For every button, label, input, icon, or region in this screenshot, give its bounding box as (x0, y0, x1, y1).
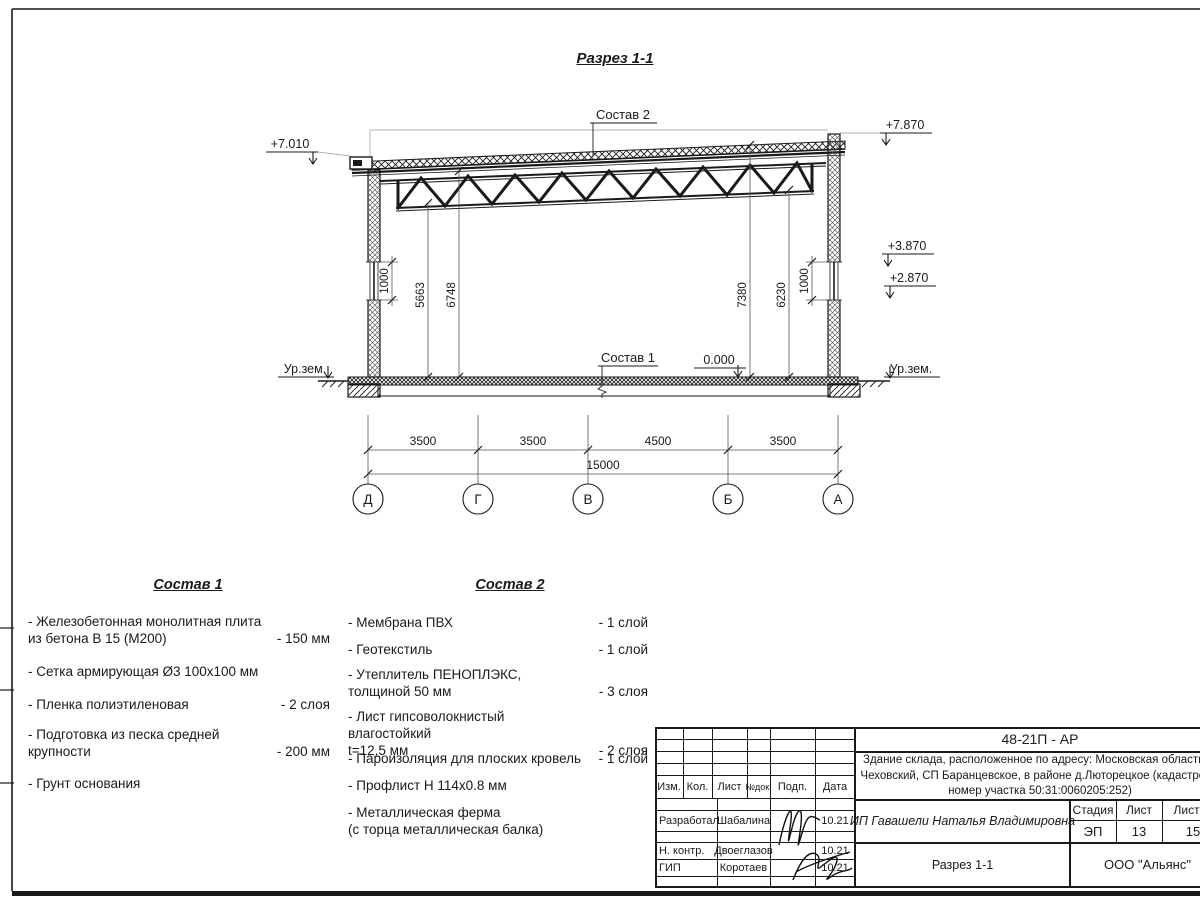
roof-truss (380, 163, 826, 211)
elev-right-lower: +2.870 (890, 271, 929, 285)
dim-1000-right: 1000 (799, 268, 811, 294)
list-item: - Сетка армирующая Ø3 100х100 мм (28, 663, 330, 680)
span-1: 3500 (410, 434, 437, 448)
ground-label-left: Ур.зем. (284, 362, 326, 376)
span-2: 3500 (520, 434, 547, 448)
material-name: - Мембрана ПВХ (348, 614, 453, 631)
dim-1000-left: 1000 (379, 268, 391, 294)
right-wall (826, 134, 842, 377)
material-name: - Утеплитель ПЕНОПЛЭКС, толщиной 50 мм (348, 666, 521, 700)
elev-right-upper: +3.870 (888, 239, 927, 253)
material-value: - 1 слой (591, 641, 648, 658)
list-item: - Подготовка из песка средней крупности … (28, 726, 330, 760)
section-title: Разрез 1-1 (545, 50, 685, 67)
axis-g: Г (474, 492, 482, 507)
ground-label-right: Ур.зем. (890, 362, 932, 376)
axis-a: А (833, 492, 842, 507)
callout-floor: Состав 1 (601, 350, 655, 365)
elev-roof-right: +7.870 (886, 118, 925, 132)
material-value: - 1 слой (591, 614, 648, 631)
material-value: - 1 слой (591, 750, 648, 767)
material-name: - Сетка армирующая Ø3 100х100 мм (28, 663, 258, 680)
dim-6748: 6748 (446, 282, 458, 308)
callout-roof: Состав 2 (596, 107, 650, 122)
list-item: - Пароизоляция для плоских кровель - 1 с… (348, 750, 648, 767)
list-item: - Геотекстиль - 1 слой (348, 641, 648, 658)
axis-b: Б (724, 492, 733, 507)
list-item: - Металлическая ферма (с торца металличе… (348, 804, 648, 838)
list-item: - Пленка полиэтиленовая - 2 слоя (28, 696, 330, 713)
material-name: - Пленка полиэтиленовая (28, 696, 189, 713)
material-name: - Геотекстиль (348, 641, 432, 658)
material-name: - Подготовка из песка средней крупности (28, 726, 219, 760)
sostav1-title: Состав 1 (118, 577, 258, 593)
grid-dimensions: 3500 3500 4500 3500 15000 Д Г В Б А (353, 415, 853, 514)
vertical-dimension-labels: 1000 5663 6748 7380 6230 1000 (379, 268, 811, 308)
material-value: - 200 мм (269, 743, 330, 760)
dim-7380: 7380 (737, 282, 749, 308)
list-item: - Утеплитель ПЕНОПЛЭКС, толщиной 50 мм -… (348, 666, 648, 700)
floor-slab (318, 377, 890, 397)
span-3: 4500 (645, 434, 672, 448)
material-name: - Грунт основания (28, 775, 140, 792)
sostav2-title: Состав 2 (440, 577, 580, 593)
material-value: - 3 слоя (591, 683, 648, 700)
signature-2 (793, 852, 852, 880)
axis-v: В (583, 492, 592, 507)
material-name: - Профлист Н 114х0.8 мм (348, 777, 507, 794)
dim-6230: 6230 (776, 282, 788, 308)
material-value: - 150 мм (269, 630, 330, 647)
signatures (779, 811, 852, 880)
span-4: 3500 (770, 434, 797, 448)
material-value: - 2 слоя (273, 696, 330, 713)
list-item: - Железобетонная монолитная плита из бет… (28, 613, 330, 647)
list-item: - Профлист Н 114х0.8 мм (348, 777, 648, 794)
dim-5663: 5663 (415, 282, 427, 308)
axis-d: Д (363, 492, 372, 507)
elev-roof-left: +7.010 (271, 137, 310, 151)
signature-1 (779, 811, 820, 845)
material-name: - Железобетонная монолитная плита из бет… (28, 613, 261, 647)
drawing-sheet: { "section": { "title": "Разрез 1-1", "e… (0, 0, 1200, 900)
list-item: - Грунт основания (28, 775, 330, 792)
list-item: - Мембрана ПВХ - 1 слой (348, 614, 648, 631)
material-name: - Пароизоляция для плоских кровель (348, 750, 581, 767)
material-name: - Металлическая ферма (с торца металличе… (348, 804, 543, 838)
roof (350, 141, 845, 176)
span-total: 15000 (586, 458, 620, 472)
elev-floor: 0.000 (703, 353, 734, 367)
